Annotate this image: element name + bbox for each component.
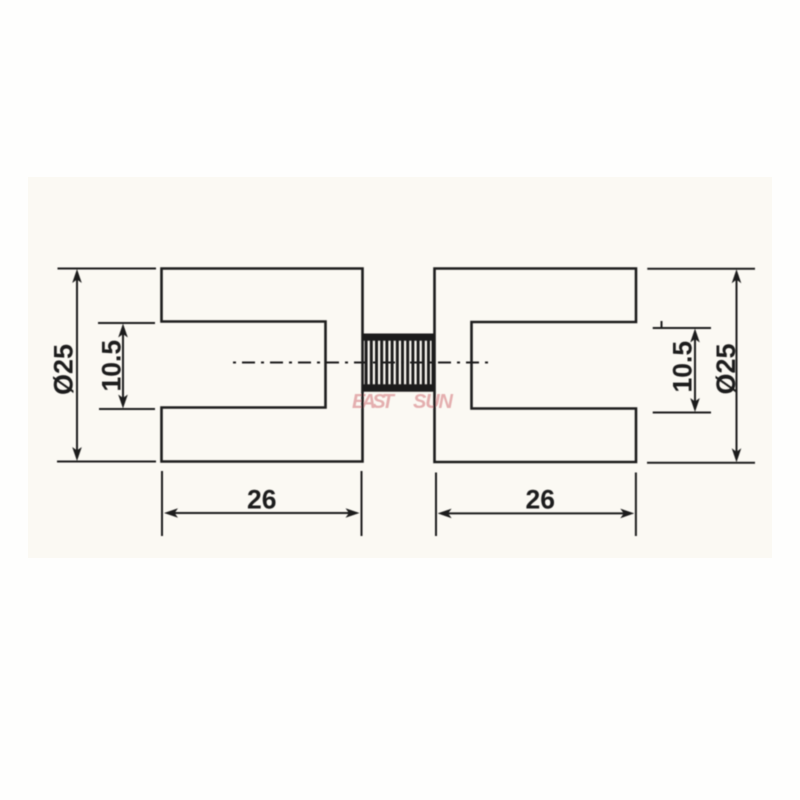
svg-text:Ø25: Ø25: [711, 343, 741, 394]
svg-text:10.5: 10.5: [668, 341, 698, 393]
svg-text:26: 26: [247, 485, 276, 515]
svg-text:Ø25: Ø25: [49, 344, 79, 395]
svg-text:10.5: 10.5: [97, 340, 127, 392]
svg-text:EAST: EAST: [352, 391, 396, 413]
svg-text:26: 26: [526, 485, 555, 515]
